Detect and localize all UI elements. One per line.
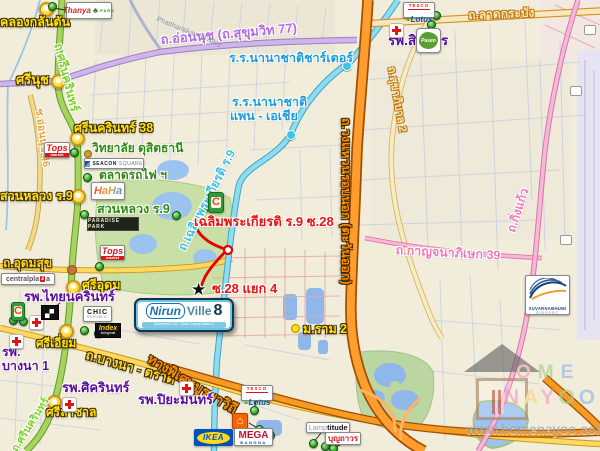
tops-market-text: market <box>101 256 124 260</box>
haha-market-logo: HaHa <box>91 182 125 200</box>
thanya-park-sub: PARK <box>100 8 115 13</box>
index-livingmall-logo: Index livingmall <box>95 323 121 338</box>
project-location-star-icon: ★ <box>191 281 206 298</box>
junction-label-m-ram2: ม.ราม 2 <box>303 323 347 336</box>
junction-dot-udomsuk <box>67 265 77 275</box>
junction-label-sri-iam: ศรีเอี่ยม <box>36 337 76 350</box>
lotus-text: Lotus <box>249 398 271 407</box>
hospital-label-sikarin: รพ.ศิครินทร์ <box>62 381 130 395</box>
pin-chic <box>80 326 89 335</box>
pin-suan-luang-park <box>172 211 181 220</box>
road-label-udomsuk: ถ.อุดมสุข <box>3 257 52 270</box>
titude-text: titude <box>327 423 347 432</box>
z-mark: z <box>40 276 45 282</box>
chic-republic-logo: CHIC REPUBLIC <box>83 306 112 322</box>
tops-market-logo-1: Tops market <box>44 142 70 158</box>
pin-thanya-park <box>48 2 57 11</box>
nirun-ville-8-project-logo: Nirun Ville 8 Sukhumvit 103 - Suan Luang… <box>134 298 234 332</box>
hospital-cross-icon-bangna1 <box>9 334 24 349</box>
big-c-letter: C <box>212 197 220 208</box>
pin-tops-1 <box>70 148 79 157</box>
square-text: SQUARE <box>119 161 143 167</box>
soi-label-soi28-yaek4: ซ.28 แยก 4 <box>212 282 277 296</box>
place-label-suan-luang-park: สวนหลวง ร.9 <box>97 203 170 216</box>
paseo-mall-logo: Paseo <box>416 28 441 53</box>
soi-label-chalermprakiat-soi28: เฉลิมพระเกียรติ ร.9 ซ.28 <box>194 215 334 229</box>
sb-grid-icon <box>45 309 54 318</box>
school-label-pan-asia-line1: ร.ร.นานาชาติ <box>232 96 307 109</box>
livingmall-text: livingmall <box>96 332 120 336</box>
tops-market-logo-2: Tops market <box>100 245 125 260</box>
seacon-square-logo: SEACON SQUARE <box>84 158 144 169</box>
pla-text: pla <box>29 276 39 283</box>
number-8: 8 <box>213 303 222 319</box>
homepro-logo: ⌂ <box>232 413 248 429</box>
seacon-icon <box>85 161 90 167</box>
suvarnabhumi-airport-logo: SUVARNABHUMI AIRPORT <box>525 275 570 315</box>
sb-design-square-logo <box>41 305 59 320</box>
nirun-text: Nirun <box>146 303 185 319</box>
dot-dusit-thani <box>84 150 92 158</box>
tesco-text: TESCO <box>246 387 268 393</box>
route-shield <box>560 235 572 245</box>
junction-label-klong-kalantan: คลองกลันตัน <box>0 16 70 29</box>
paradise-park-text: PARADISE PARK <box>88 218 138 230</box>
central-plaza-logo: centralplaza <box>1 273 55 285</box>
hospital-label-bangna1-line2: บางนา 1 <box>2 360 49 373</box>
place-label-train-market: ตลาดรถไฟ ฯ <box>99 169 167 182</box>
junction-label-suan-luang: สวนหลวง ร.9 <box>0 190 73 203</box>
ikea-text: IKEA <box>203 433 224 442</box>
ville-text: Ville <box>187 304 211 318</box>
project-tagline: Sukhumvit 103 - Suan Luang Rama 9 <box>142 322 226 328</box>
lamp-text: Lamp <box>308 423 327 432</box>
pin-boonthavorn <box>329 444 338 451</box>
route-shield <box>570 86 582 96</box>
school-label-dusit-thani: วิทยาลัย ดุสิตธานี <box>92 142 183 155</box>
boonthavorn-text: บุญถาวร <box>328 432 358 445</box>
paseo-leaf-icon: Paseo <box>419 32 438 49</box>
pin-lamptitude-1 <box>309 439 318 448</box>
dot-m-ram2 <box>291 324 300 333</box>
hospital-cross-icon-sikarin <box>62 397 77 412</box>
paradise-park-logo: PARADISE PARK <box>87 217 139 231</box>
house-icon: ⌂ <box>237 415 244 427</box>
tesco-lotus-logo-top: TESCO ❧Lotus <box>403 2 435 18</box>
hospital-cross-icon-piyamin <box>179 381 194 396</box>
road-label-outer-ring: ถ.วงแหวนรอบนอก (ตะวันออก) <box>339 118 352 285</box>
seacon-text: SEACON <box>92 161 116 167</box>
map-canvas: ถ.อ่อนนุช (ถ.สุขุมวิท 77) ถ.ศรีนครินทร์ … <box>0 0 600 451</box>
tesco-text: TESCO <box>408 4 430 10</box>
bangna-text: BANGNA <box>235 441 272 445</box>
junction-label-srinut: ศรีนุช <box>16 73 49 87</box>
thanya-park-name: Thanya <box>63 6 91 15</box>
republic-text: REPUBLIC <box>84 316 111 320</box>
school-label-charter: ร.ร.นานาชาติชาร์เตอร์ <box>229 52 353 65</box>
suvarnabhumi-waves-icon <box>528 278 568 300</box>
dot-pan-asia-school <box>286 130 296 140</box>
tops-market-text: market <box>45 153 69 157</box>
junction-label-srinagarindra38: ศรีนครินทร์ 38 <box>74 122 153 135</box>
paseo-text: Paseo <box>421 38 436 44</box>
pin-train-market <box>83 173 92 182</box>
airport-text: AIRPORT <box>526 311 569 315</box>
lotus-text: Lotus <box>411 15 433 24</box>
big-c-logo-left: C <box>11 302 25 321</box>
mega-bangna-logo: MEGA BANGNA <box>234 428 273 446</box>
tree-icon: ♣ <box>93 6 98 15</box>
hospital-cross-icon-sirindhorn <box>389 23 404 38</box>
tesco-lotus-logo-bottom: TESCO ❧Lotus <box>241 385 273 401</box>
pin-tops-2 <box>95 262 104 271</box>
junction-marker-suan-luang <box>71 189 86 204</box>
hospital-label-piyamin: รพ.ปิยะมินทร์ <box>138 393 213 407</box>
a-text: a <box>46 276 50 283</box>
route-shield <box>584 25 596 35</box>
school-label-pan-asia-line2: แพน - เอเชีย <box>230 110 298 123</box>
road-label-ladkrabang: ถ.ลาดกระบัง <box>468 7 535 22</box>
boonthavorn-logo: บุญถาวร <box>325 432 361 445</box>
ikea-logo: IKEA <box>194 429 233 446</box>
hospital-label-thai-nakarin: รพ.ไทยนครินทร์ <box>24 290 115 304</box>
thanya-park-logo: Thanya ♣ PARK <box>66 2 112 19</box>
big-c-letter: C <box>14 306 22 317</box>
haha-text: HaHa <box>94 185 122 197</box>
big-c-logo-right: C <box>208 192 224 213</box>
central-text: central <box>6 276 29 283</box>
